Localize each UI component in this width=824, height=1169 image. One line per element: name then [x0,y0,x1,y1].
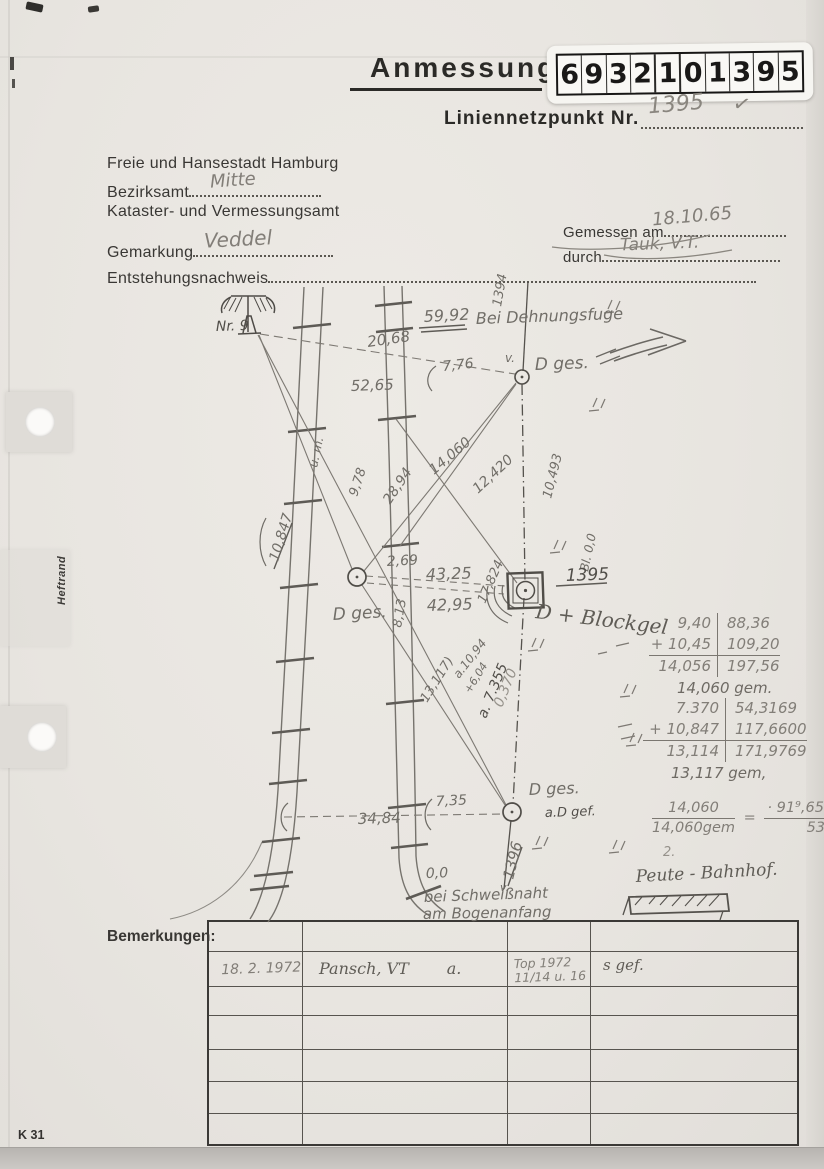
sketch-annotation: 7,35 [435,792,467,810]
sketch-annotation: Peute - Bahnhof. [634,860,778,887]
sketch-annotation: 14,060 [426,434,474,478]
direction-arrow-sketch [596,329,686,364]
sketch-annotation: 0,0 [426,865,449,882]
sketch-annotation: 52,65 [351,376,395,395]
left-track [170,287,323,922]
sketch-annotation: 1394 [490,272,511,307]
sketch-annotation: D ges. [528,778,579,799]
sketch-annotation: Nr. 9 [216,318,249,335]
sketch-annotation: 17,824 [475,558,507,606]
stamp-digit: 1 [654,54,680,92]
sketch-annotation: Bei Dehnungsfuge [475,304,623,328]
left-track-ties [250,324,331,890]
sketch-annotation: 34,84 [358,809,402,828]
stamp-digit: 6 [558,55,582,93]
stamp-digit: 1 [705,53,730,91]
sketch-annotation: 10,493 [540,452,566,500]
stamp-digit: 9 [753,53,778,91]
sketch-annotation: 42,95 [426,594,472,615]
scanned-survey-form: Anmessung 6932101395 Liniennetzpunkt Nr.… [0,0,824,1169]
sketch-annotation: 1395 [565,564,609,585]
liniennetzpunkt-value-handwritten: 1395 [647,90,705,120]
platform-symbol [623,894,729,920]
sketch-annotation: 2,69 [386,552,418,570]
sketch-annotation: 28,94 [380,465,416,507]
stamp-digit: 3 [729,53,754,91]
stamp-digit: 2 [630,54,655,92]
sketch-annotation: D ges. [332,602,387,625]
sketch-annotation: 7,76 [442,356,475,375]
sketch-annotation: u. m. [306,436,326,469]
sketch-annotation: D + Blockgel [533,599,669,639]
sketch-annotation: 2. [663,845,675,860]
sketch-annotation: 1396 [499,840,526,881]
stamp-digit: 5 [777,52,802,90]
survey-sketch: Nr. 959,92Bei Dehnungsfuge20,687,76v.139… [0,0,824,1169]
sketch-annotation: 59,92 [423,305,470,326]
handwriting-flourishes [552,235,732,259]
sketch-annotation: 9,78 [347,466,370,498]
stamp-digit-boxes: 6932101395 [556,50,805,95]
sketch-annotation: 12,420 [470,452,517,497]
stamp-digit: 0 [679,54,705,92]
stamp-digit: 3 [605,55,630,93]
sketch-annotation: D ges. [534,353,589,375]
sketch-annotation: a.D gef. [545,804,596,821]
stamp-digit: 9 [581,55,606,93]
sketch-annotation: v. [505,351,515,365]
sketch-annotation: 43,25 [425,563,471,584]
sketch-annotation: am Bogenanfang [423,903,552,923]
